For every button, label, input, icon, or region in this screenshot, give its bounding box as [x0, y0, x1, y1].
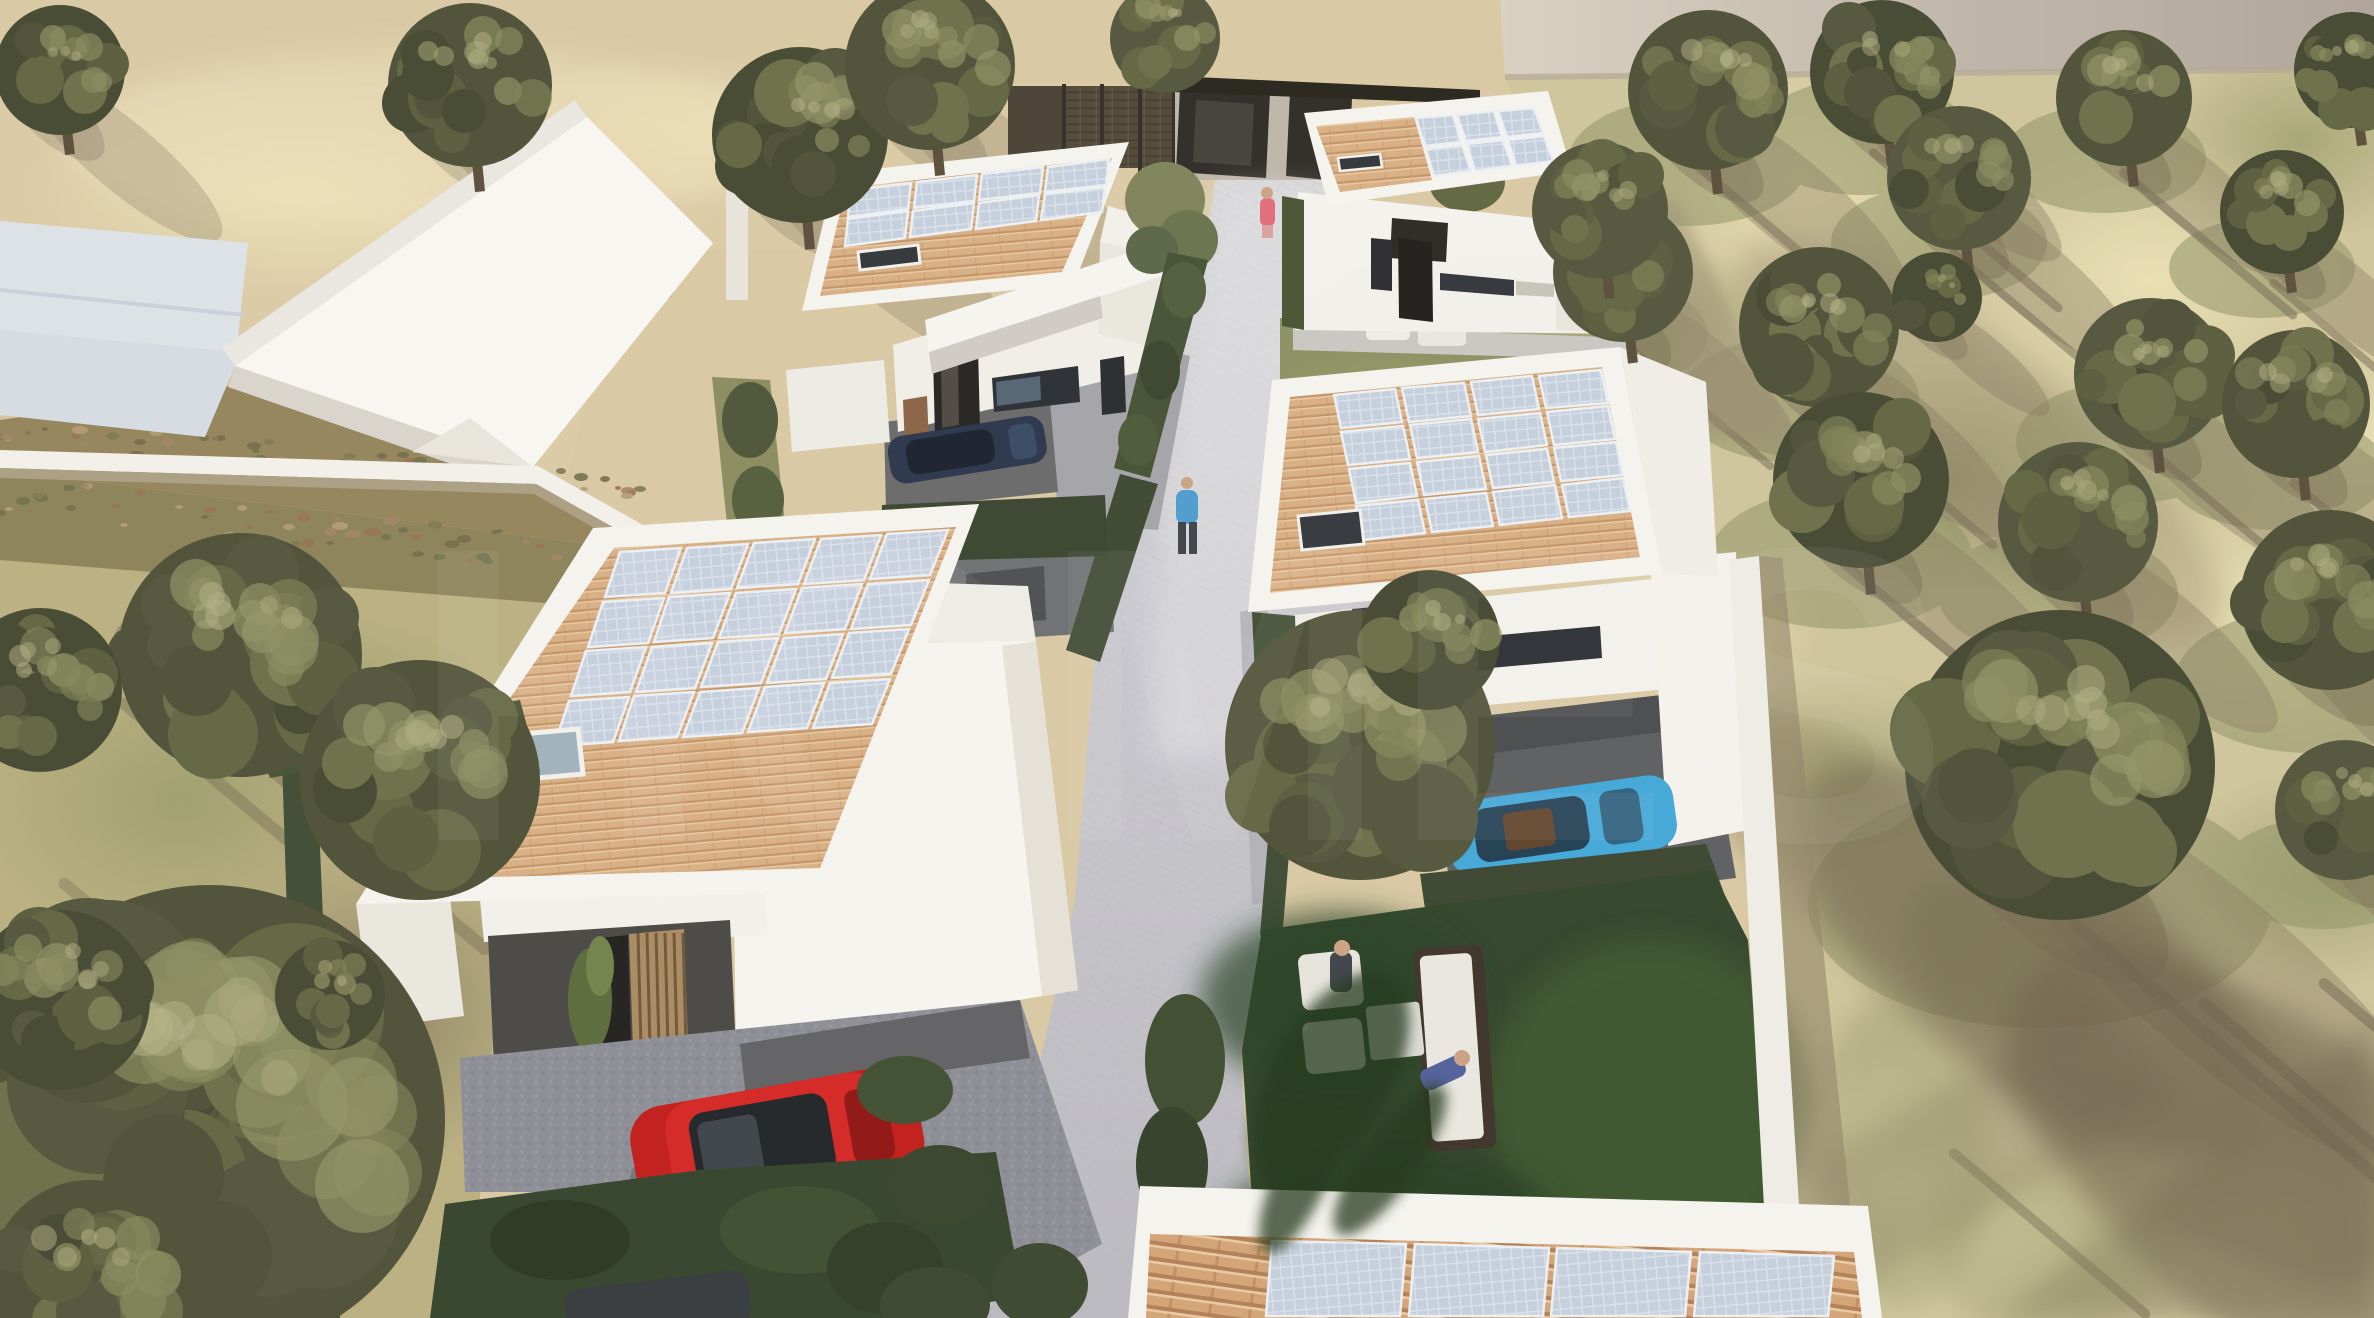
- svg-text:HOMES: HOMES: [410, 461, 1950, 930]
